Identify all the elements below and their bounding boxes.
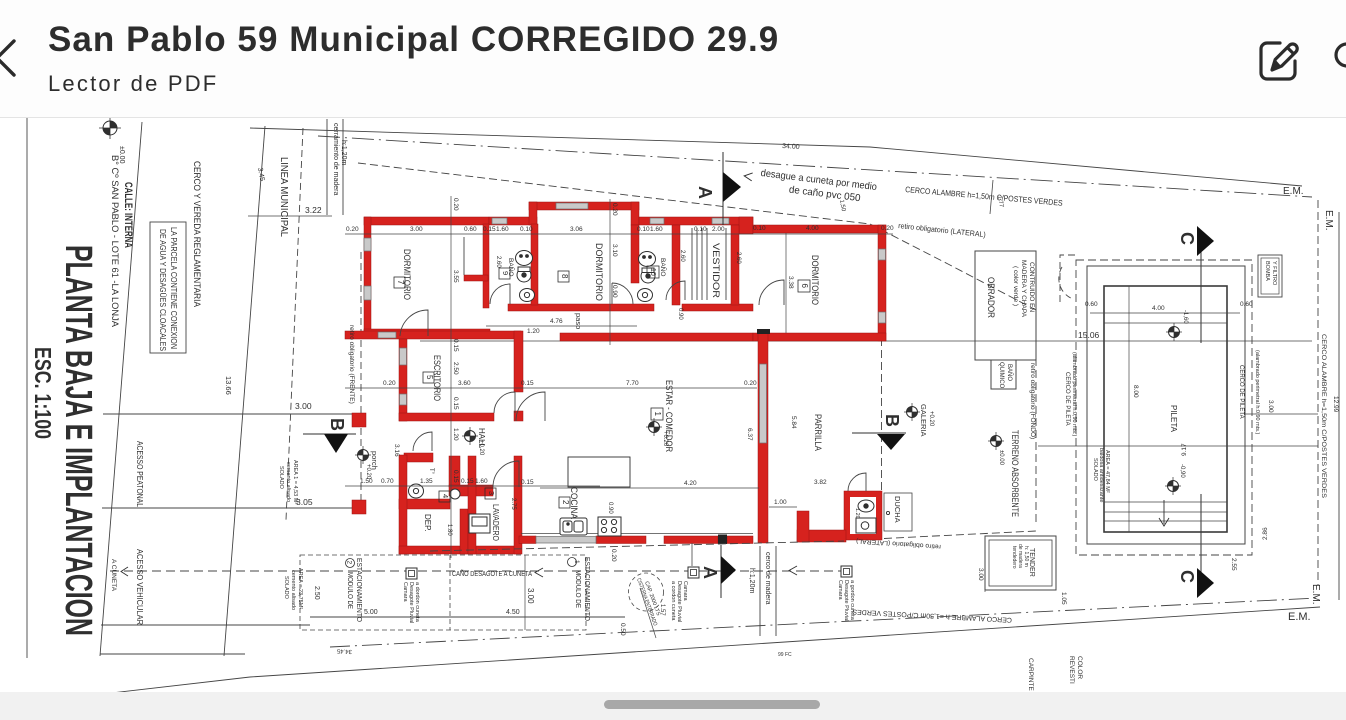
svg-text:3.00: 3.00 — [295, 401, 312, 411]
svg-text:0.15: 0.15 — [521, 380, 534, 387]
svg-text:3.00: 3.00 — [1267, 400, 1274, 413]
svg-text:2.60: 2.60 — [495, 256, 501, 268]
svg-text:Desagote Pluvial: Desagote Pluvial — [843, 580, 849, 621]
svg-text:2: 2 — [346, 561, 353, 565]
svg-text:1: 1 — [653, 412, 662, 417]
svg-text:CERCO Y VEREDA REGLAMENTARIA: CERCO Y VEREDA REGLAMENTARIA — [191, 161, 202, 308]
svg-text:E.M.: E.M. — [1283, 186, 1304, 197]
svg-text:2: 2 — [561, 500, 570, 505]
svg-text:1.77: 1.77 — [996, 195, 1004, 208]
svg-text:a cordon cuneta: a cordon cuneta — [670, 581, 676, 621]
svg-text:BAÑO: BAÑO — [659, 258, 668, 276]
svg-text:1.20: 1.20 — [854, 508, 860, 519]
svg-text:-1,60: -1,60 — [1182, 310, 1188, 324]
svg-text:8.00: 8.00 — [1132, 385, 1139, 398]
svg-text:h:1,20m: h:1,20m — [340, 140, 347, 165]
svg-text:REVESTI: REVESTI — [1068, 656, 1075, 684]
svg-text:2.50: 2.50 — [313, 586, 320, 600]
svg-text:retiro obligatorio (FRENTE): retiro obligatorio (FRENTE) — [348, 325, 355, 404]
svg-text:baldosa antideslizante: baldosa antideslizante — [1098, 448, 1104, 502]
svg-text:1: 1 — [573, 560, 580, 564]
svg-text:retiro obligatorio (LATERAL): retiro obligatorio (LATERAL) — [856, 537, 941, 550]
svg-text:1,50: 1,50 — [838, 199, 846, 212]
svg-text:3.00: 3.00 — [410, 226, 423, 233]
svg-text:Y FILTRO: Y FILTRO — [1271, 261, 1277, 286]
svg-text:cerramiento de madera: cerramiento de madera — [332, 123, 339, 195]
svg-text:0.60: 0.60 — [1240, 301, 1253, 308]
svg-text:( color verde ): ( color verde ) — [1012, 266, 1019, 306]
svg-text:-0,90: -0,90 — [1179, 464, 1185, 478]
svg-text:3.00: 3.00 — [526, 588, 535, 604]
svg-text:0.20: 0.20 — [881, 225, 894, 232]
svg-text:0.90: 0.90 — [611, 285, 618, 298]
svg-text:0.15: 0.15 — [461, 478, 474, 485]
svg-text:BOMBA: BOMBA — [1264, 261, 1270, 281]
svg-text:3: 3 — [487, 491, 496, 495]
svg-text:2.60: 2.60 — [735, 252, 741, 264]
svg-text:0.10: 0.10 — [520, 226, 533, 233]
svg-text:0.15: 0.15 — [452, 470, 459, 483]
svg-text:0.15: 0.15 — [452, 339, 459, 352]
svg-text:ESTACIONAMIENTO: ESTACIONAMIENTO — [355, 558, 364, 622]
svg-text:2.00: 2.00 — [712, 226, 725, 233]
svg-text:AREA 1 = 4,53 M²: AREA 1 = 4,53 M² — [292, 460, 298, 504]
svg-text:9: 9 — [501, 271, 510, 275]
svg-text:DEP.: DEP. — [423, 514, 432, 532]
svg-text:1.60: 1.60 — [650, 226, 663, 233]
svg-text:PARRILLA: PARRILLA — [813, 414, 823, 451]
svg-text:E.M.: E.M. — [1288, 611, 1311, 623]
svg-text:GALERIA: GALERIA — [919, 404, 928, 437]
svg-text:3.82: 3.82 — [814, 479, 827, 486]
svg-text:ESTACIONAMIENTO: ESTACIONAMIENTO — [583, 557, 592, 621]
svg-text:cerco de madera: cerco de madera — [764, 552, 771, 605]
svg-text:B: B — [882, 414, 902, 427]
svg-text:0.70: 0.70 — [381, 478, 394, 485]
svg-text:C: C — [1177, 570, 1197, 583]
svg-text:retiro obligatorio (FONDO): retiro obligatorio (FONDO) — [1029, 363, 1036, 439]
svg-text:1.50: 1.50 — [360, 478, 373, 485]
svg-text:ACESSO PEATONAL: ACESSO PEATONAL — [135, 441, 145, 507]
svg-text:PILETA: PILETA — [1169, 405, 1178, 433]
svg-text:de madera: de madera — [1017, 544, 1023, 568]
svg-text:3.16: 3.16 — [393, 444, 400, 457]
svg-text:0.10: 0.10 — [694, 226, 707, 233]
svg-text:QUIMICO: QUIMICO — [998, 362, 1004, 389]
svg-text:(alambrado perimetral h:0,90 m: (alambrado perimetral h:0,90 mts.) — [1071, 352, 1077, 437]
svg-text:LINEA MUNICIPAL: LINEA MUNICIPAL — [278, 157, 289, 237]
svg-text:0.20: 0.20 — [452, 198, 459, 211]
svg-text:VESTIDOR: VESTIDOR — [711, 243, 721, 299]
svg-text:3.00: 3.00 — [977, 568, 984, 581]
svg-text:8: 8 — [560, 274, 569, 279]
svg-text:13.66: 13.66 — [224, 376, 233, 395]
svg-text:99 FC: 99 FC — [778, 652, 792, 658]
svg-text:Camara: Camara — [402, 582, 408, 603]
svg-text:DE AGUA Y DESAGÜES CLOACALES: DE AGUA Y DESAGÜES CLOACALES — [158, 229, 168, 351]
svg-text:3.60: 3.60 — [458, 380, 471, 387]
svg-text:CONTRUIDO EN: CONTRUIDO EN — [1028, 262, 1035, 313]
svg-text:MODULO DE: MODULO DE — [346, 572, 355, 609]
svg-text:3.22: 3.22 — [305, 205, 322, 215]
svg-text:E.M.: E.M. — [1310, 584, 1321, 605]
svg-text:DORMITORIO: DORMITORIO — [594, 243, 604, 301]
svg-text:0.90: 0.90 — [607, 502, 613, 514]
svg-text:CERCO ALAMBRE h=1,50m C/POSTES: CERCO ALAMBRE h=1,50m C/POSTES VERDES — [905, 185, 1063, 208]
svg-text:CERCO ALAMBRE h =1,50m C/POSTE: CERCO ALAMBRE h =1,50m C/POSTES VERDES — [852, 608, 1012, 623]
svg-text:3.06: 3.06 — [570, 226, 583, 233]
svg-text:B° Cº SAN PABLO - LOTE 61 -LA: B° Cº SAN PABLO - LOTE 61 -LA LONJA — [110, 155, 120, 327]
svg-text:CERCO DE PILETA: CERCO DE PILETA — [1064, 372, 1070, 426]
svg-text:+0.20: +0.20 — [928, 411, 934, 427]
svg-text:0.20: 0.20 — [744, 380, 757, 387]
svg-text:CAÑO DESAGOTE A CUNETA: CAÑO DESAGOTE A CUNETA — [452, 569, 532, 578]
svg-text:Camara: Camara — [837, 580, 843, 601]
svg-text:+0.20: +0.20 — [478, 440, 484, 456]
svg-text:AREA = 47,84 M²: AREA = 47,84 M² — [1104, 450, 1110, 493]
svg-text:±0.00: ±0.00 — [998, 450, 1004, 466]
svg-text:LAVADERO: LAVADERO — [491, 504, 501, 541]
svg-text:0.20: 0.20 — [346, 226, 359, 233]
svg-text:1.60: 1.60 — [475, 478, 488, 485]
svg-text:cemento alisado: cemento alisado — [290, 570, 296, 610]
svg-text:2.60: 2.60 — [679, 250, 685, 262]
svg-text:CERCO ALAMBRE h=1,50m C/POSTES: CERCO ALAMBRE h=1,50m C/POSTES VERDES — [1320, 334, 1327, 499]
svg-text:DORMITORIO: DORMITORIO — [810, 255, 820, 305]
svg-text:0.20: 0.20 — [383, 380, 396, 387]
svg-text:3.38: 3.38 — [787, 276, 794, 289]
svg-text:1.20: 1.20 — [527, 328, 540, 335]
svg-text:h: 1,50 m: h: 1,50 m — [1023, 546, 1029, 567]
svg-text:0.10: 0.10 — [753, 225, 766, 232]
svg-text:BAÑO: BAÑO — [1006, 364, 1013, 381]
svg-text:4.00: 4.00 — [806, 225, 819, 232]
svg-text:3.55: 3.55 — [452, 270, 459, 283]
svg-text:CERCO DE PILETA: CERCO DE PILETA — [1238, 365, 1244, 419]
svg-text:1.05: 1.05 — [1060, 592, 1067, 605]
svg-text:3.10: 3.10 — [611, 244, 618, 257]
svg-text:0.15: 0.15 — [521, 479, 534, 486]
svg-text:0.15: 0.15 — [483, 226, 496, 233]
svg-text:10: 10 — [649, 268, 656, 276]
svg-text:SOLADO: SOLADO — [278, 466, 284, 490]
svg-text:0.60: 0.60 — [464, 226, 477, 233]
svg-text:A: A — [695, 186, 715, 199]
svg-text:4.76: 4.76 — [550, 318, 563, 325]
svg-text:A: A — [700, 566, 720, 579]
svg-text:2.75: 2.75 — [510, 498, 516, 510]
svg-text:MODULO DE: MODULO DE — [574, 570, 583, 608]
svg-text:5.84: 5.84 — [790, 416, 797, 429]
svg-text:12.99: 12.99 — [1332, 396, 1339, 413]
svg-text:5.00: 5.00 — [364, 609, 378, 616]
svg-text:4.00: 4.00 — [1152, 305, 1165, 312]
svg-text:tendedero: tendedero — [1011, 546, 1017, 569]
svg-text:6: 6 — [800, 284, 809, 289]
svg-text:0.50: 0.50 — [619, 623, 626, 636]
svg-text:DORMITORIO: DORMITORIO — [402, 249, 412, 300]
svg-text:1.60: 1.60 — [496, 226, 509, 233]
svg-text:h:1,20m: h:1,20m — [748, 568, 755, 593]
svg-text:34.45: 34.45 — [336, 647, 352, 654]
svg-text:0.20: 0.20 — [610, 549, 617, 562]
svg-text:34.00: 34.00 — [782, 143, 800, 151]
svg-text:E.M.: E.M. — [1323, 210, 1334, 231]
svg-text:LA PARCELA CONTIENE CONEXION: LA PARCELA CONTIENE CONEXION — [169, 227, 179, 349]
svg-text:OBRADOR: OBRADOR — [986, 277, 996, 318]
svg-text:DUCHA: DUCHA — [893, 496, 902, 523]
svg-text:0.60: 0.60 — [1085, 301, 1098, 308]
svg-text:0.15: 0.15 — [452, 397, 459, 410]
svg-text:Desagote Pluvial: Desagote Pluvial — [408, 582, 414, 623]
svg-text:ESC. 1:100: ESC. 1:100 — [30, 347, 56, 439]
svg-text:+0.20: +0.20 — [662, 431, 668, 447]
svg-text:9.17: 9.17 — [1181, 443, 1188, 456]
svg-text:ACESSO VEHICULAR: ACESSO VEHICULAR — [135, 549, 145, 625]
svg-text:0.10: 0.10 — [637, 226, 650, 233]
svg-text:T°: T° — [428, 468, 434, 475]
svg-text:CALLE: INTERNA: CALLE: INTERNA — [122, 182, 134, 248]
svg-text:PLANTA BAJA E IMPLANTACION: PLANTA BAJA E IMPLANTACION — [57, 245, 99, 636]
svg-text:0.90: 0.90 — [677, 308, 683, 320]
svg-text:1.35: 1.35 — [420, 478, 433, 485]
svg-text:COLOR: COLOR — [1076, 656, 1083, 679]
svg-text:2.86: 2.86 — [1262, 527, 1269, 540]
svg-text:cemento alisado: cemento alisado — [285, 462, 291, 502]
svg-text:15.06: 15.06 — [1078, 330, 1100, 340]
svg-text:4: 4 — [441, 494, 450, 498]
svg-text:1.80: 1.80 — [446, 524, 452, 536]
svg-text:(alambrado perimetral h:0,90 m: (alambrado perimetral h:0,90 mts.) — [1254, 350, 1260, 435]
svg-text:3.45: 3.45 — [256, 167, 265, 182]
svg-text:A CUNETA: A CUNETA — [110, 559, 117, 592]
svg-text:MADERA Y CHAPA: MADERA Y CHAPA — [1020, 260, 1027, 318]
svg-text:1.00: 1.00 — [774, 499, 787, 506]
svg-text:7.70: 7.70 — [626, 380, 639, 387]
svg-text:a dordon cuneta: a dordon cuneta — [414, 582, 420, 623]
svg-text:4.20: 4.20 — [684, 480, 697, 487]
svg-text:TERRENO ABSORBENTE: TERRENO ABSORBENTE — [1010, 430, 1020, 517]
svg-text:1.20: 1.20 — [452, 428, 459, 441]
svg-text:retiro obligatorio (LATERAL): retiro obligatorio (LATERAL) — [898, 221, 987, 239]
svg-text:C: C — [1177, 232, 1197, 245]
svg-text:4.50: 4.50 — [506, 609, 520, 616]
svg-text:paso: paso — [574, 313, 583, 329]
svg-text:7: 7 — [396, 280, 405, 285]
svg-text:SOLADO: SOLADO — [283, 576, 289, 600]
svg-text:SOLADO: SOLADO — [1092, 458, 1098, 482]
svg-text:0.20: 0.20 — [611, 203, 618, 216]
svg-text:AREA = 23,75M²: AREA = 23,75M² — [297, 568, 303, 609]
svg-text:2.55: 2.55 — [1230, 558, 1237, 571]
svg-text:2.50: 2.50 — [452, 362, 459, 375]
svg-text:5: 5 — [425, 375, 434, 380]
svg-text:B: B — [327, 418, 347, 431]
svg-text:CARPINTE: CARPINTE — [1027, 658, 1034, 692]
svg-text:6.37: 6.37 — [746, 428, 753, 441]
